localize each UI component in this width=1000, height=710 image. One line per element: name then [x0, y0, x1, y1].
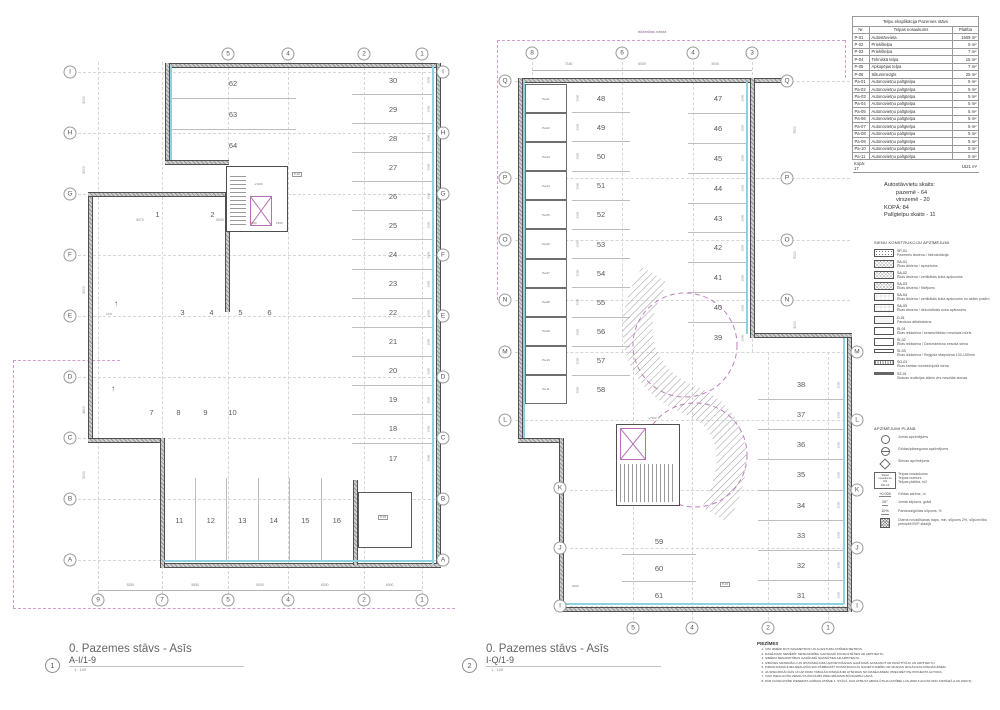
wall-swatch	[874, 372, 894, 376]
wall-swatch	[874, 327, 894, 335]
hatch-symbol	[880, 518, 890, 528]
parking-stall: 492500	[572, 112, 630, 141]
symbol-text: 10%	[881, 509, 889, 515]
parking-stall: 60	[622, 554, 696, 581]
dim-label: 5000	[793, 251, 797, 259]
wall-swatch	[874, 282, 894, 290]
wall	[160, 563, 441, 568]
title-block-1: 1 0. Pazemes stāvs - Asīs A-I/1-9 1 : 10…	[45, 643, 255, 672]
axis-bubble: 5	[222, 48, 235, 61]
stall-dim-label: 2500	[575, 182, 579, 189]
stall-dim-label: 2500	[575, 387, 579, 394]
insulation-line	[523, 82, 525, 438]
wall-swatch	[874, 316, 894, 324]
parking-stall: 16	[321, 478, 353, 562]
wall	[518, 438, 564, 443]
insulation-line	[746, 82, 748, 334]
parking-stall: 13	[226, 478, 258, 562]
wall-legend-text: SZ-01Skaņas izolācijas slānis virs nesoš…	[897, 372, 994, 380]
plan-legend-symbol	[874, 435, 896, 444]
axis-bubble: 1	[416, 48, 429, 61]
dim-label: 5070	[100, 218, 180, 222]
plan-legend-label: Jumta slīpums, grādi	[898, 500, 994, 504]
parking-stall: 282500	[352, 123, 434, 152]
table-row: Pa-05Autonovietņu palīgtelpa5 m²	[853, 108, 979, 115]
plan1-stalls-bottom: 111213141516	[164, 478, 352, 562]
column-header: Platība	[953, 26, 979, 33]
note-item: IZMĒRU NESAKRITĪBAS GADĪJUMĀ SAZINĀTIES …	[765, 656, 997, 660]
dim-label: 3000	[82, 471, 86, 479]
cell-nr: Pa-07	[853, 123, 870, 130]
cell-name: Siltummezgls	[870, 71, 953, 78]
stall-dim-label: 2500	[741, 155, 745, 162]
plan-legend-item: 10%Pandusa/grīdas slīpums, %	[874, 509, 994, 515]
dim-label: 5000	[82, 166, 86, 174]
cell-name: Autostāvvieta	[870, 33, 953, 40]
stall-number: 7	[138, 408, 165, 417]
stall-number: 15	[301, 516, 309, 525]
stall-dim-label: 2500	[741, 125, 745, 132]
axis-bubble: F	[64, 249, 77, 262]
dim-line	[98, 590, 422, 591]
plan-legend-label: Grīdas atzīme, m	[898, 492, 994, 496]
count-line: Autostāvvietu skaits:	[884, 182, 936, 190]
cell-nr: Pa-03	[853, 93, 870, 100]
wall-desc: Ēkas iekšsiena / Reģipša starpsiena 100-…	[897, 353, 994, 357]
stall-number: 45	[714, 154, 722, 163]
axis-bubble: N	[781, 294, 794, 307]
axis-bubble: 7	[156, 594, 169, 607]
cell-area: 5 m²	[953, 145, 979, 152]
stall-dim-label: 2500	[837, 532, 841, 539]
stall-dim-label: 2500	[427, 135, 431, 142]
plan-legend-symbol	[874, 459, 896, 469]
table-row: Pa-06Autonovietņu palīgtelpa5 m²	[853, 115, 979, 122]
stall-number: 10	[219, 408, 246, 417]
axis-bubble: 4	[686, 622, 699, 635]
stall-dim-label: 2500	[575, 328, 579, 335]
stall-dim-label: 2500	[427, 397, 431, 404]
parking-stall: 512500	[572, 171, 630, 200]
note-item: VISU PIEGULOŠO ZEMJU PLĀNOJUMS PRECIZĒJA…	[765, 674, 997, 678]
stall-dim-label: 2500	[575, 299, 579, 306]
stall-number: 3	[168, 308, 197, 317]
cell-area: 5 m²	[953, 100, 979, 107]
parking-stall: 242500	[352, 239, 434, 268]
wall-swatch	[874, 349, 894, 353]
stall-number: 17	[389, 454, 397, 463]
boundary-label: būvtiesības robeža	[638, 30, 666, 34]
wall-desc: Ēkas ārsiena / flīzējums	[897, 286, 994, 290]
axis-bubble: M	[851, 346, 864, 359]
stall-number: 61	[655, 591, 663, 600]
parking-stall: 62	[170, 68, 296, 98]
dim-label: 5000	[82, 286, 86, 294]
count-line: Palīgtelpu skaits - 11	[884, 212, 936, 220]
axis-bubble: I	[851, 600, 864, 613]
plan-legend-symbol: +0.000	[874, 492, 896, 498]
wall	[160, 438, 165, 568]
grid-line	[497, 40, 845, 41]
view-number-badge: 1	[45, 658, 60, 673]
stall-number: 50	[597, 152, 605, 161]
axis-bubble: H	[437, 127, 450, 140]
stall-number: 60	[655, 564, 663, 573]
axis-bubble: 4	[282, 594, 295, 607]
cell-name: Priekštelpa	[870, 48, 953, 55]
insulation-line	[170, 66, 172, 160]
parking-stall: 502500	[572, 141, 630, 170]
wall-legend-item: SA-01Ēkas ārsiena / apmetums	[874, 260, 994, 268]
cell-name: Priekštelpa	[870, 41, 953, 48]
wall	[165, 63, 441, 68]
stall-number: 48	[597, 94, 605, 103]
circle2-symbol	[881, 447, 890, 456]
parking-stall: 14	[258, 478, 290, 562]
plan-legend-label: Ūdens novadīšanas traps, min. slīpums 2%…	[898, 518, 994, 526]
elevation-label: -2.900	[254, 182, 263, 186]
parking-stall: 522500	[572, 200, 630, 229]
aux-room: Pa-01	[525, 84, 567, 113]
aux-room: Pa-08	[525, 288, 567, 317]
table-title-row: Telpu eksplikācija Pazemes stāvs	[853, 17, 979, 27]
view-axes: A-I/1-9	[69, 655, 244, 667]
stall-number: 16	[333, 516, 341, 525]
parking-stall: 432500	[688, 203, 748, 233]
wall-swatch	[874, 360, 894, 365]
cell-nr: Pa-08	[853, 130, 870, 137]
stall-number: 47	[714, 94, 722, 103]
wall-swatch	[874, 293, 894, 301]
circle-symbol	[881, 435, 890, 444]
parking-stall: 222500	[352, 298, 434, 327]
table-row: P-01Autostāvvieta1509 m²	[853, 33, 979, 40]
stall-dim-label: 2500	[575, 270, 579, 277]
parking-stall: 302500	[352, 66, 434, 94]
room-label-symbol: Telpas nosaukums I-01 100 m2	[874, 472, 896, 488]
table-row: Pa-09Autonovietņu palīgtelpa5 m²	[853, 138, 979, 145]
wall-legend-text: SI-01Ēkas iekšsiena / keramzītbloku neso…	[897, 327, 994, 335]
plan2-dims-top: 718060005000	[532, 62, 752, 66]
wall-swatch	[874, 304, 894, 312]
parking-stall: 272500	[352, 152, 434, 181]
note-item: IZBŪVES MATERIĀLU UN IZSTRĀDĀJUMU AIZVIE…	[765, 661, 997, 665]
count-line: virszemē - 20	[884, 197, 936, 205]
wall-legend-text: SI-02Ēkas iekšsiena / Dzelzsbetona nesoš…	[897, 338, 994, 346]
cell-area: 5 m²	[953, 108, 979, 115]
wall	[847, 333, 852, 612]
room-schedule-table: Telpu eksplikācija Pazemes stāvsNr.Telpa…	[852, 16, 979, 173]
stall-number: 20	[389, 366, 397, 375]
parking-stall: 442500	[688, 173, 748, 203]
dim-label: 7180	[532, 62, 605, 66]
stall-dim-label: 2500	[837, 502, 841, 509]
view-axes: I-Q/1-9	[486, 655, 661, 667]
view-title: 0. Pazemes stāvs - Asīs	[69, 643, 255, 655]
notes-title: PIEZĪMES	[757, 641, 997, 646]
stall-dim-label: 2500	[837, 592, 841, 599]
stall-number: 11	[175, 516, 183, 525]
wall-desc: Ēkas ārsiena / dekoratīvais koka apšuvum…	[897, 308, 994, 312]
symbol-text: 26°	[882, 500, 888, 506]
cell-nr: Pa-10	[853, 145, 870, 152]
table-row: P-06Siltummezgls25 m²	[853, 71, 979, 78]
table-row: Pa-08Autonovietņu palīgtelpa5 m²	[853, 130, 979, 137]
stall-number: 18	[389, 424, 397, 433]
plan1-row-b: 78910	[138, 408, 246, 417]
parking-stall: 15	[289, 478, 321, 562]
cell-name: Autonovietņu palīgtelpa	[870, 145, 953, 152]
note-item: PAR ±0.000 ATZĪMI PIEŅEMTA GRĪDAS ATZĪME…	[765, 679, 997, 683]
note-item: VISI IZMĒRI DOTI MILIMETROS UN AUGSTUMA …	[765, 647, 997, 651]
stall-number: 19	[389, 395, 397, 404]
stall-dim-label: 2500	[741, 185, 745, 192]
table-row: Pa-01Autonovietņu palīgtelpa5 m²	[853, 78, 979, 85]
wall-legend-text: D-01Pandusa atbalstsiena	[897, 316, 994, 324]
axis-bubble: 9	[92, 594, 105, 607]
aux-room: Pa-03	[525, 142, 567, 171]
stall-number: 63	[229, 110, 237, 119]
stall-dim-label: 2500	[575, 357, 579, 364]
parking-stall: 472500	[688, 84, 748, 113]
axis-bubble: I	[554, 600, 567, 613]
wall-legend-text: SA-05Ēkas ārsiena / dekoratīvais koka ap…	[897, 304, 994, 312]
wall	[88, 192, 93, 443]
table-title: Telpu eksplikācija Pazemes stāvs	[853, 17, 979, 27]
insulation-line	[564, 603, 844, 605]
grid-line	[845, 40, 846, 78]
parking-stall: 192500	[352, 385, 434, 414]
stall-number: 14	[270, 516, 278, 525]
cell-nr: P-02	[853, 41, 870, 48]
stall-number: 44	[714, 184, 722, 193]
note-item: PIRMS RISINĀJUMA REALIZĀCIJAS PĀRBAUDĪT …	[765, 665, 997, 669]
axis-bubble: C	[437, 432, 450, 445]
cell-nr: P-05	[853, 63, 870, 70]
table-row: Pa-11Autonovietņu palīgtelpa5 m²	[853, 152, 979, 159]
parking-stall: 63	[170, 98, 296, 129]
cell-name: Autonovietņu palīgtelpa	[870, 100, 953, 107]
grid-line	[13, 608, 455, 609]
wall-swatch	[874, 249, 894, 257]
axis-bubble: P	[781, 172, 794, 185]
plan-legend-item: Sienas apzīmējums	[874, 459, 994, 469]
cell-nr: Pa-06	[853, 115, 870, 122]
wall-legend-item: D-01Pandusa atbalstsiena	[874, 316, 994, 324]
parking-stall: 232500	[352, 269, 434, 298]
wall-legend-item: SA-05Ēkas ārsiena / dekoratīvais koka ap…	[874, 304, 994, 312]
count-line: KOPĀ: 84	[884, 205, 936, 213]
plan-legend-label: Jumta apzīmējums	[898, 435, 994, 439]
axis-bubble: O	[499, 234, 512, 247]
cell-name: Autonovietņu palīgtelpa	[870, 108, 953, 115]
stall-number: 12	[207, 516, 215, 525]
view-scale: 1 : 100	[74, 667, 255, 672]
cell-nr: P-03	[853, 48, 870, 55]
view-number-badge: 2	[462, 658, 477, 673]
plan-legend-symbol: Telpas nosaukums I-01 100 m2	[874, 472, 896, 488]
column-header: Nr.	[853, 26, 870, 33]
stall-dim-label: 2500	[741, 215, 745, 222]
wall-desc: Ēkas ārsiena / apmetums	[897, 264, 994, 268]
wall-swatch	[874, 271, 894, 279]
wall	[165, 160, 229, 165]
dim-label: 6300	[292, 583, 357, 587]
wall	[750, 333, 852, 338]
stall-number: 13	[238, 516, 246, 525]
axis-bubble: 2	[358, 48, 371, 61]
room-tag: P-06	[378, 515, 388, 520]
cell-nr: Pa-02	[853, 86, 870, 93]
note-item: RASĒJUMU NEMĒRĪT. NESKAIDRĪBU GADĪJUMĀ K…	[765, 652, 997, 656]
axis-bubble: 6	[616, 47, 629, 60]
axis-bubble: 3	[746, 47, 759, 60]
axis-bubble: A	[64, 554, 77, 567]
table-row: Pa-07Autonovietņu palīgtelpa5 m²	[853, 123, 979, 130]
cell-nr: P-04	[853, 56, 870, 63]
cell-name: Autonovietņu palīgtelpa	[870, 138, 953, 145]
cell-area: 1509 m²	[953, 33, 979, 40]
dim-label: 6000	[605, 62, 678, 66]
cell-area: 5 m²	[953, 41, 979, 48]
table-row: P-03Priekštelpa7 m²	[853, 48, 979, 55]
cell-name: Apkopējas telpa	[870, 63, 953, 70]
aux-room: Pa-10	[525, 346, 567, 375]
stall-number: 24	[389, 250, 397, 259]
plan-legend-item: Telpas nosaukums I-01 100 m2Telpas nosau…	[874, 472, 994, 488]
cell-area: 5 m²	[953, 93, 979, 100]
stall-dim-label: 2500	[427, 309, 431, 316]
wall-legend-item: SZ-01Skaņas izolācijas slānis virs nesoš…	[874, 372, 994, 380]
parking-counts: Autostāvvietu skaits:pazemē - 64virszemē…	[884, 182, 936, 220]
axis-bubble: K	[851, 484, 864, 497]
cell-area: 5 m²	[953, 123, 979, 130]
ramp-arrow-icon: ↑	[114, 300, 118, 308]
stall-dim-label: 2500	[837, 411, 841, 418]
cell-name: Tehniskā telpa	[870, 56, 953, 63]
axis-bubble: H	[64, 127, 77, 140]
wall-desc: Ēkas iekšsiena / Dzelzsbetona nesošā sie…	[897, 342, 994, 346]
plan-legend-item: Ūdens novadīšanas traps, min. slīpums 2%…	[874, 518, 994, 528]
stairs	[620, 464, 676, 502]
parking-stall: 252500	[352, 210, 434, 239]
cell-nr: P-01	[853, 33, 870, 40]
axis-bubble: O	[781, 234, 794, 247]
table-row: Pa-04Autonovietņu palīgtelpa5 m²	[853, 100, 979, 107]
plan2-stalls-bottom: 596061	[622, 528, 696, 608]
plan2-pa-rooms: Pa-01Pa-02Pa-03Pa-04Pa-05Pa-06Pa-07Pa-08…	[525, 84, 567, 404]
aux-room: Pa-07	[525, 259, 567, 288]
parking-stall: 12	[195, 478, 227, 562]
stall-number: 46	[714, 124, 722, 133]
axis-bubble: E	[437, 310, 450, 323]
cell-name: Autonovietņu palīgtelpa	[870, 123, 953, 130]
cell-name: Autonovietņu palīgtelpa	[870, 152, 953, 159]
table-row: Pa-02Autonovietņu palīgtelpa5 m²	[853, 86, 979, 93]
stall-dim-label: 2500	[427, 251, 431, 258]
stall-number: 29	[389, 105, 397, 114]
stall-dim-label: 2500	[575, 95, 579, 102]
stall-dim-label: 2500	[575, 212, 579, 219]
stall-number: 6	[255, 308, 284, 317]
grid-line	[98, 62, 99, 594]
stall-dim-label: 2500	[427, 193, 431, 200]
wall	[750, 78, 755, 338]
table-header-row: Nr.Telpas nosaukumsPlatība	[853, 26, 979, 33]
cell-area: 7 m²	[953, 48, 979, 55]
title-block-2: 2 0. Pazemes stāvs - Asīs I-Q/1-9 1 : 10…	[462, 643, 672, 672]
axis-bubble: L	[851, 414, 864, 427]
wall-desc: Ēkas iekšsiena / keramzītbloku nesošais …	[897, 331, 994, 335]
aux-room: Pa-05	[525, 200, 567, 229]
stall-number: 25	[389, 221, 397, 230]
plan1-stalls-right: 3025002925002825002725002625002525002425…	[352, 66, 434, 472]
table-row: Pa-10Autonovietņu palīgtelpa5 m²	[853, 145, 979, 152]
insulation-line	[432, 66, 434, 564]
cell-nr: Pa-04	[853, 100, 870, 107]
dim-line	[532, 70, 752, 71]
wall-legend-text: SA-02Ēkas ārsiena / vertikālais koka apš…	[897, 271, 994, 279]
parking-stall: 292500	[352, 94, 434, 123]
cell-name: Autonovietņu palīgtelpa	[870, 86, 953, 93]
stall-number: 5	[226, 308, 255, 317]
stall-dim-label: 2500	[427, 338, 431, 345]
ramp-arrow-icon: ↑	[111, 385, 115, 393]
wall-legend-text: SA-01Ēkas ārsiena / apmetums	[897, 260, 994, 268]
wall-legend-item: SA-02Ēkas ārsiena / vertikālais koka apš…	[874, 271, 994, 279]
plan-legend-item: +0.000Grīdas atzīme, m	[874, 492, 994, 498]
parking-stall: 462500	[688, 113, 748, 143]
room-tag: P-03	[720, 582, 730, 587]
parking-stall: 482500	[572, 84, 630, 112]
stall-dim-label: 2500	[741, 95, 745, 102]
wall-legend-text: SP-01Pazemes ārsiena / hidroizolācija	[897, 249, 994, 257]
cell-area: 5 m²	[953, 138, 979, 145]
stall-number: 32	[797, 561, 805, 570]
stall-dim-label: 2500	[427, 280, 431, 287]
insulation-line	[843, 338, 845, 604]
dim-label: 4600	[82, 406, 86, 414]
plan1-stalls-topleft: 626364	[170, 68, 296, 160]
stall-number: 28	[389, 134, 397, 143]
room-tag: P-02	[292, 172, 302, 177]
axis-bubble: E	[64, 310, 77, 323]
stall-number: 27	[389, 163, 397, 172]
aux-room: Pa-04	[525, 171, 567, 200]
stairs	[230, 176, 246, 226]
stall-number: 8	[165, 408, 192, 417]
axis-bubble: J	[554, 542, 567, 555]
stall-dim-label: 2500	[427, 455, 431, 462]
notes-block: PIEZĪMES VISI IZMĒRI DOTI MILIMETROS UN …	[757, 641, 997, 684]
wall-legend: SIENU KONSTRUKCIJU APZĪMĒJUMI SP-01Pazem…	[874, 240, 994, 383]
wall	[88, 192, 230, 197]
aux-room: Pa-02	[525, 113, 567, 142]
aux-room: Pa-06	[525, 229, 567, 258]
axis-bubble: A	[437, 554, 450, 567]
parking-stall: 172500	[352, 443, 434, 472]
axis-bubble: 8	[526, 47, 539, 60]
plan-legend-item: Jumta apzīmējums	[874, 435, 994, 444]
plan-legend-label: Grīdas/pārseguma apzīmējums	[898, 447, 994, 451]
stall-dim-label: 2500	[427, 426, 431, 433]
axis-bubble: L	[499, 414, 512, 427]
dim-label: 5000	[679, 62, 752, 66]
table-row: P-05Apkopējas telpa7 m²	[853, 63, 979, 70]
parking-stall: 11	[164, 478, 195, 562]
cell-spacer	[870, 160, 953, 173]
parking-stall: 212500	[352, 327, 434, 356]
